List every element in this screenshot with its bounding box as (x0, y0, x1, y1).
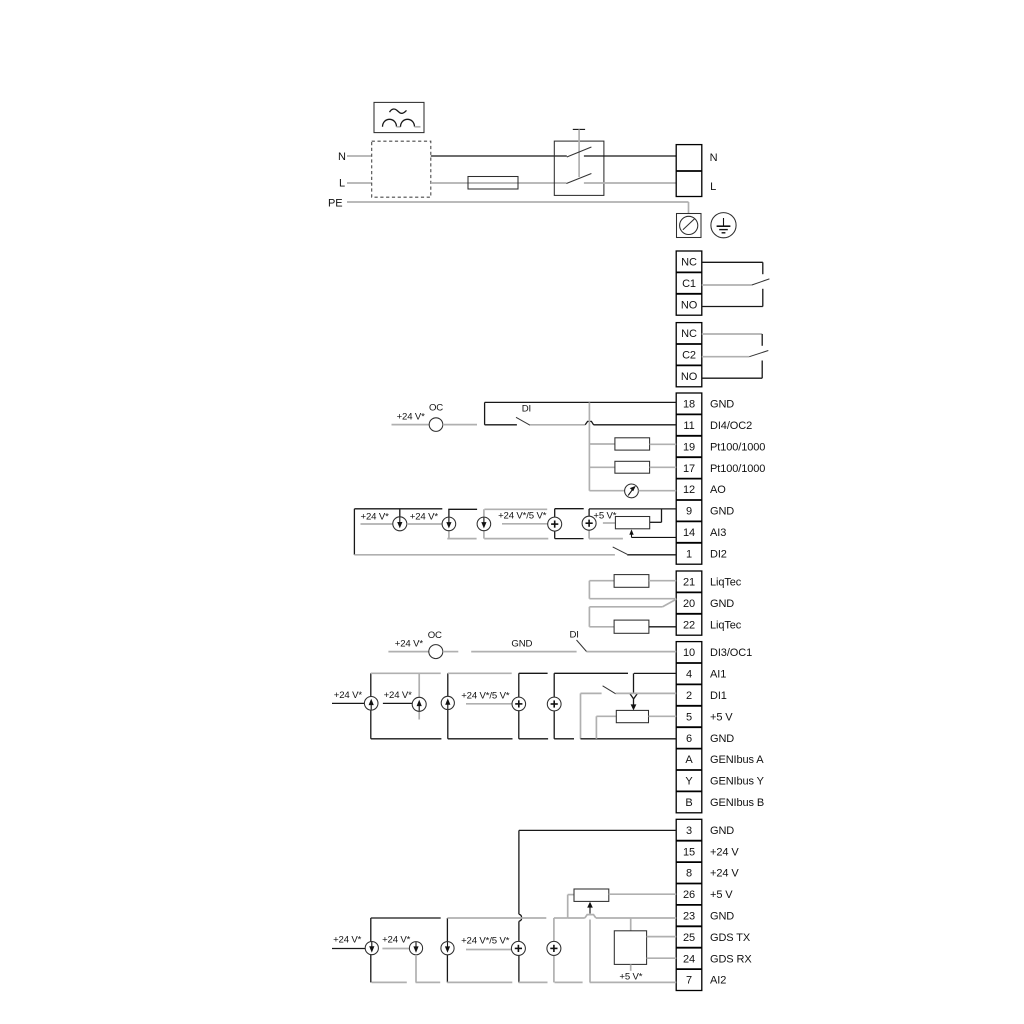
svg-text:OC: OC (428, 630, 442, 641)
svg-text:5: 5 (686, 711, 692, 723)
svg-text:Y: Y (685, 776, 693, 788)
svg-text:14: 14 (683, 527, 695, 539)
svg-text:+24 V*: +24 V* (410, 511, 439, 522)
svg-text:PE: PE (328, 197, 342, 209)
svg-text:C2: C2 (682, 350, 696, 362)
svg-text:20: 20 (683, 598, 695, 610)
svg-text:11: 11 (683, 420, 694, 432)
svg-text:+5 V*: +5 V* (619, 971, 642, 982)
svg-text:26: 26 (683, 889, 695, 901)
svg-text:24: 24 (683, 953, 695, 965)
svg-text:DI4/OC2: DI4/OC2 (710, 420, 752, 432)
svg-text:25: 25 (683, 932, 695, 944)
svg-text:AI1: AI1 (710, 669, 726, 681)
svg-text:GENIbus Y: GENIbus Y (710, 776, 765, 788)
svg-text:DI: DI (522, 404, 531, 415)
svg-text:B: B (685, 797, 692, 809)
svg-text:21: 21 (683, 577, 695, 589)
svg-text:+24 V*: +24 V* (382, 935, 411, 946)
svg-text:+24 V*: +24 V* (334, 690, 363, 701)
svg-text:+24 V*: +24 V* (395, 638, 424, 649)
svg-text:AO: AO (710, 484, 726, 496)
svg-text:GND: GND (710, 825, 734, 837)
svg-text:23: 23 (683, 911, 695, 923)
svg-text:DI: DI (570, 630, 579, 641)
svg-text:DI1: DI1 (710, 690, 727, 702)
svg-text:GND: GND (710, 598, 734, 610)
svg-text:+24 V*: +24 V* (384, 690, 413, 701)
svg-text:NO: NO (681, 299, 698, 311)
svg-text:GENIbus A: GENIbus A (710, 754, 764, 766)
svg-text:AI2: AI2 (710, 975, 726, 987)
svg-text:+24 V*/5 V*: +24 V*/5 V* (461, 935, 510, 946)
svg-text:L: L (710, 181, 716, 193)
svg-text:OC: OC (429, 403, 443, 414)
svg-text:A: A (685, 754, 693, 766)
svg-text:+24 V*: +24 V* (397, 411, 426, 422)
svg-text:18: 18 (683, 399, 695, 411)
svg-text:+5 V: +5 V (710, 889, 733, 901)
svg-text:+24 V*: +24 V* (361, 511, 390, 522)
svg-text:GND: GND (710, 399, 734, 411)
svg-text:GND: GND (710, 911, 734, 923)
svg-text:LiqTec: LiqTec (710, 577, 742, 589)
svg-text:15: 15 (683, 846, 695, 858)
svg-text:GND: GND (511, 638, 532, 649)
svg-text:NC: NC (681, 257, 697, 269)
svg-text:GENIbus B: GENIbus B (710, 797, 764, 809)
svg-text:+24 V*/5 V*: +24 V*/5 V* (498, 511, 547, 522)
svg-text:+24 V: +24 V (710, 868, 739, 880)
svg-text:N: N (710, 152, 718, 164)
svg-text:+24 V: +24 V (710, 846, 739, 858)
svg-text:22: 22 (683, 619, 695, 631)
svg-text:12: 12 (683, 484, 695, 496)
svg-text:4: 4 (686, 669, 692, 681)
svg-text:6: 6 (686, 733, 692, 745)
svg-text:C1: C1 (682, 278, 696, 290)
svg-text:2: 2 (686, 690, 692, 702)
svg-text:10: 10 (683, 647, 695, 659)
svg-text:NC: NC (681, 328, 697, 340)
svg-text:+24 V*: +24 V* (333, 935, 362, 946)
svg-text:19: 19 (683, 441, 695, 453)
svg-text:L: L (339, 177, 345, 189)
svg-text:GDS RX: GDS RX (710, 953, 752, 965)
svg-text:DI3/OC1: DI3/OC1 (710, 647, 752, 659)
svg-text:Pt100/1000: Pt100/1000 (710, 441, 765, 453)
svg-text:+5 V*: +5 V* (593, 511, 616, 522)
svg-text:1: 1 (686, 548, 692, 560)
svg-text:AI3: AI3 (710, 527, 726, 539)
svg-text:N: N (338, 151, 346, 163)
svg-text:8: 8 (686, 868, 692, 880)
svg-text:DI2: DI2 (710, 548, 727, 560)
svg-text:GND: GND (710, 733, 734, 745)
svg-text:GDS TX: GDS TX (710, 932, 751, 944)
svg-text:+5 V: +5 V (710, 711, 733, 723)
svg-text:GND: GND (710, 506, 734, 518)
svg-text:+24 V*/5 V*: +24 V*/5 V* (461, 691, 510, 702)
svg-text:3: 3 (686, 825, 692, 837)
svg-text:17: 17 (683, 463, 695, 475)
svg-text:NO: NO (681, 371, 698, 383)
svg-text:Pt100/1000: Pt100/1000 (710, 463, 765, 475)
svg-text:9: 9 (686, 506, 692, 518)
svg-text:7: 7 (686, 975, 692, 987)
svg-text:LiqTec: LiqTec (710, 619, 742, 631)
